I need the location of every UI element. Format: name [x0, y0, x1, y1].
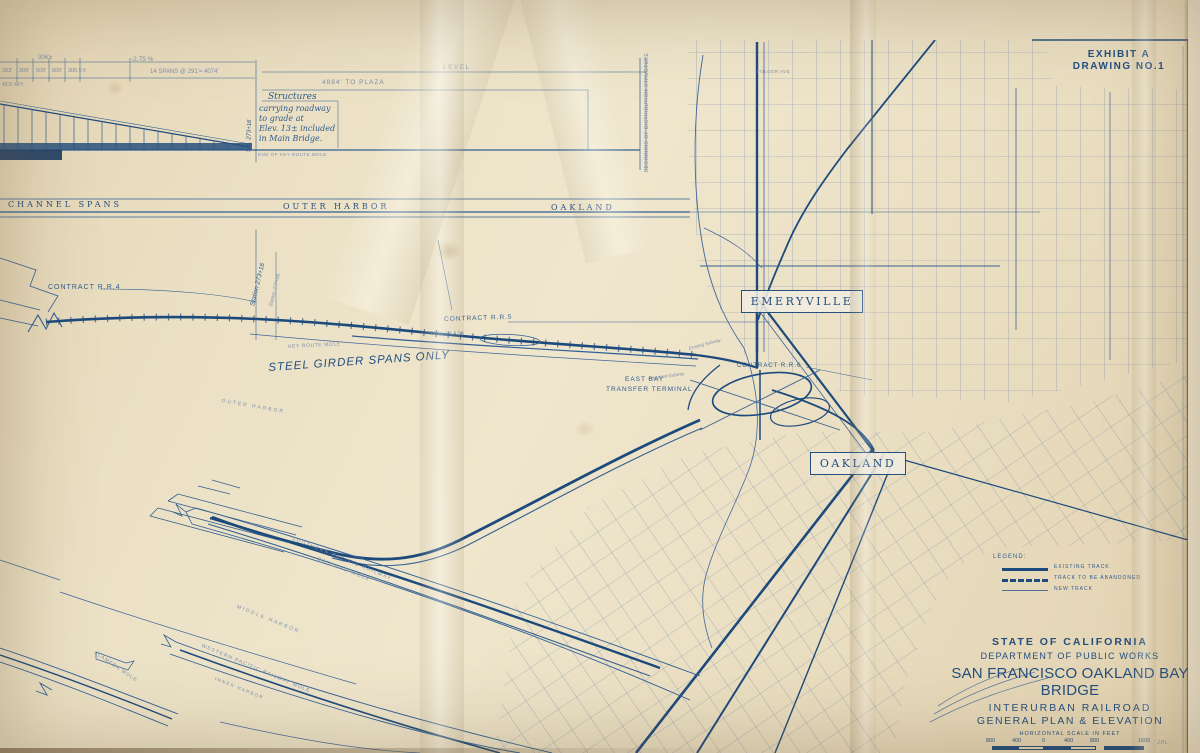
legend-item-label: NEW TRACK [1054, 586, 1093, 592]
dim-283: 283' [2, 68, 12, 74]
drawing-number-label: DRAWING NO.1 [1056, 61, 1182, 72]
band-outer-harbor: OUTER HARBOR [283, 202, 389, 211]
structures-note-line: in Main Bridge. [259, 134, 322, 143]
emeryville-box: EMERYVILLE [741, 290, 863, 313]
level-label: LEVEL [443, 64, 471, 71]
band-channel-spans: CHANNEL SPANS [8, 200, 122, 209]
scale-tick: 0 [1042, 738, 1045, 744]
scale-tick: 800 [986, 738, 995, 744]
folger-ave-label: FOLGER AVE [757, 69, 790, 74]
dim-grade: -2.75 % [131, 56, 153, 63]
scale-label: HORIZONTAL SCALE IN FEET [950, 731, 1190, 737]
end-key-route-mole: END OF KEY ROUTE MOLE [258, 152, 327, 157]
scale-tick: 800 [1090, 738, 1099, 744]
dim-spans: 14 SPANS @ 291'= 4074' [150, 69, 218, 75]
subtitle-railroad: INTERURBAN RAILROAD [950, 702, 1190, 714]
existing-track-sample [1002, 568, 1048, 571]
structures-note-line: Elev. 13± included [259, 124, 335, 133]
oakland-box: OAKLAND [810, 452, 906, 475]
title-block: STATE OF CALIFORNIA DEPARTMENT OF PUBLIC… [950, 636, 1190, 753]
drafter-initials: J.P.L. [1157, 740, 1169, 746]
transfer-terminal-label: TRANSFER TERMINAL [606, 386, 693, 393]
dim-306: 306'± [38, 55, 52, 61]
legend-item-label: EXISTING TRACK [1054, 564, 1110, 570]
dim-3065: 306.5'± [68, 68, 86, 74]
contract-rr4-label: CONTRACT R.R.4 [48, 284, 121, 291]
department-line: DEPARTMENT OF PUBLIC WORKS [950, 651, 1190, 661]
subtitle-plan: GENERAL PLAN & ELEVATION [950, 715, 1190, 727]
scale-tick: 400 [1064, 738, 1073, 744]
new-track-sample [1002, 590, 1048, 591]
dim-small: 43.5' 49'± [2, 82, 23, 88]
abandoned-track-sample [1002, 579, 1048, 582]
dim-509a: 509' [36, 68, 46, 74]
structures-note-line: Structures [268, 92, 317, 102]
structures-note-line: carrying roadway [259, 104, 330, 113]
scale-tick: 1600 [1138, 738, 1150, 744]
toll-plaza-label: TOLL PLAZA [430, 331, 464, 337]
dim-309: 309' [19, 68, 29, 74]
to-plaza-dim: 4884' TO PLAZA [322, 79, 385, 86]
dim-509b: 509' [52, 68, 62, 74]
scanned-map-sheet: 306'± -2.75 % 283' 309' 509' 509' 306.5'… [0, 0, 1200, 753]
beginning-distribution-structure: BEGINNING OF DISTRIBUTION STRUCTURE [644, 53, 650, 172]
state-line: STATE OF CALIFORNIA [950, 636, 1190, 648]
east-bay-label: EAST BAY [625, 376, 664, 383]
scale-bar: 800 400 0 400 800 1600 [992, 738, 1152, 753]
scale-tick: 400 [1012, 738, 1021, 744]
band-oakland: OAKLAND [551, 203, 615, 212]
scale-bar-segments [992, 746, 1152, 750]
structures-note-line: to grade at [259, 114, 304, 123]
sta-273-elevation: Sta. 273+16 [246, 119, 253, 152]
legend-title: LEGEND: [993, 554, 1026, 560]
legend-item-label: TRACK TO BE ABANDONED [1054, 575, 1141, 581]
contract-rr6-label: CONTRACT R.R.6 [737, 363, 801, 369]
exhibit-label: EXHIBIT A [1056, 49, 1182, 60]
map-title: SAN FRANCISCO OAKLAND BAY BRIDGE [950, 665, 1190, 699]
